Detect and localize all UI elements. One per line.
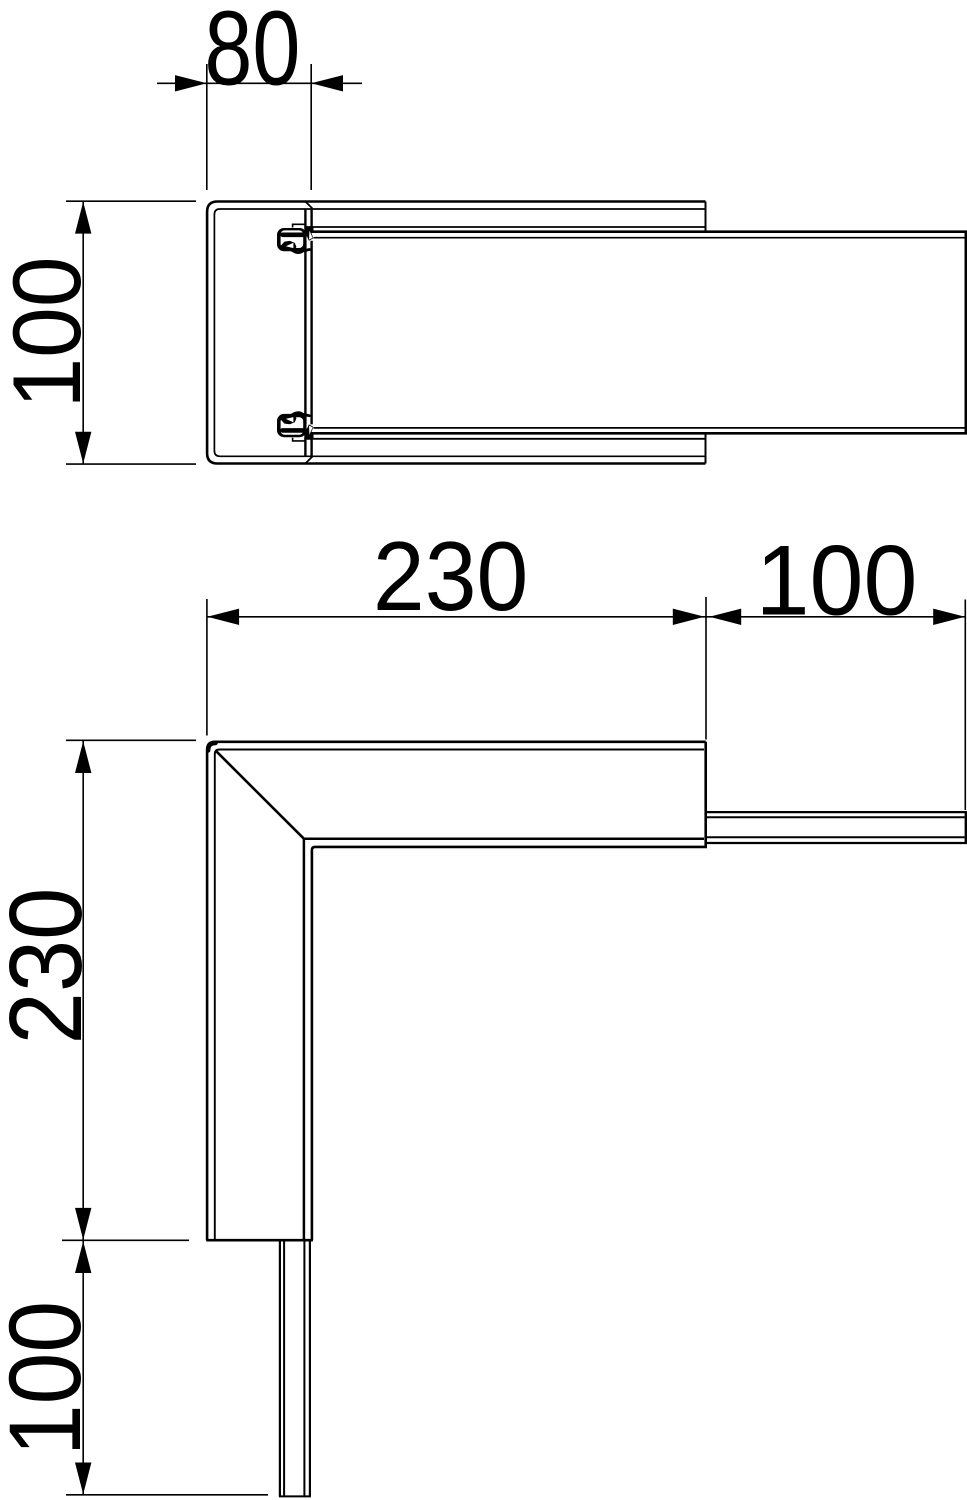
svg-text:80: 80 <box>204 0 300 108</box>
svg-text:230: 230 <box>0 888 103 1045</box>
svg-text:100: 100 <box>0 256 100 408</box>
svg-text:100: 100 <box>0 1301 102 1456</box>
svg-text:230: 230 <box>373 522 528 632</box>
svg-text:100: 100 <box>756 525 918 636</box>
